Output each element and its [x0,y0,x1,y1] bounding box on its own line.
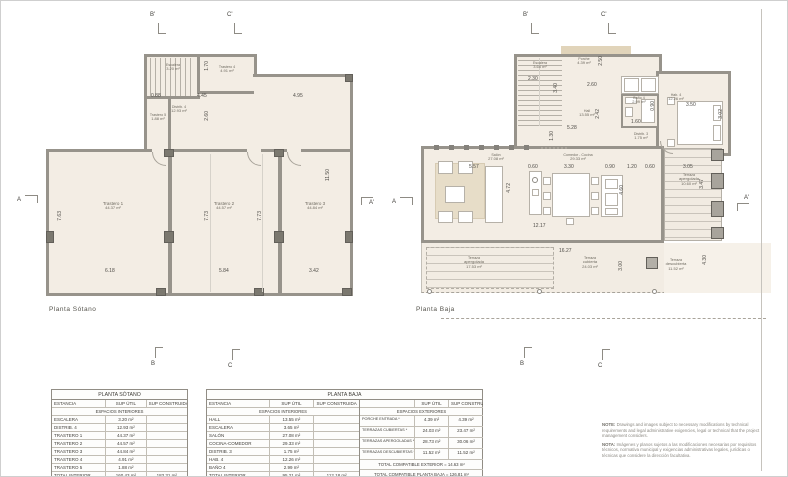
counter-sink [605,208,618,215]
dim-isl: 0.60 [528,165,538,170]
dim-170: 1.70 [205,61,210,71]
column-base [427,289,432,294]
cell: HAB. 4 [207,456,270,463]
table-section-row: ESPACIOS INTERIORES [52,408,187,416]
table-row: TRASTERO 2 44.57 m² [52,440,187,448]
cell: 12.93 m² [106,424,146,431]
chair [543,177,551,185]
marker-c-prime-sotano: C' [227,12,232,18]
sotano-main-block [46,149,353,296]
cell: 24.03 m² [415,427,449,437]
cell [314,456,359,463]
cell: 28.73 m² [415,438,449,448]
cell: 1.88 m² [106,464,146,471]
window-mullion [449,145,454,150]
dim-main-w: 12.17 [533,224,546,229]
total-exterior: TOTAL COMPATIBLE EXTERIOR = 14.63 m² [360,460,483,470]
marker-c-prime-baja: C' [601,12,606,18]
marker-b-prime-baja: B' [523,12,528,18]
room-label-escalera-baja: Escalera 3.65 m² [520,61,560,70]
toilet [625,107,633,117]
pillar [342,288,352,296]
dim-strip-h: 3.47 [700,179,705,189]
table-row: TRASTERO 5 1.88 m² [52,464,187,472]
cell: 2.99 m² [270,464,315,471]
chair [543,192,551,200]
cell [147,464,187,471]
wall [197,54,200,94]
chair [591,177,599,185]
pillar [345,231,353,243]
marker-tick [37,195,38,203]
marker-tick [158,33,166,34]
dim-esc-h: 3.40 [554,83,559,93]
room-area: 11.52 m² [649,267,703,272]
cell: TRASTERO 4 [52,456,106,463]
pillow [713,125,721,141]
room-label-trastero2: Trastero 2 44.57 m² [202,201,246,211]
dryer [641,78,656,92]
dim-342: 3.42 [309,269,319,274]
cell [314,464,359,471]
cell: TOTAL INTERIOR [52,472,106,477]
room-area: 29.33 m² [549,157,607,162]
cell: 30.06 m² [449,438,483,448]
dim-763: 7.63 [58,211,63,221]
sofa [485,166,503,223]
floorplan-sheet: Escalera 3.20 m² Trastero 4 4.91 m² Tras… [0,0,788,477]
site-dashed-line [441,318,766,319]
table-header-row: ESTANCIA SUP ÚTIL SUP CONSTRUIDA [207,400,359,408]
oven [605,193,618,206]
dim-hall-h: 2.42 [596,109,601,119]
dim-gap-b: 0.60 [645,165,655,170]
dim-088: 0.88 [151,94,161,99]
island-sink [532,177,538,183]
table-row: COCINA-COMEDOR 29.33 m² [207,440,359,448]
cell: 95.21 m² [270,472,315,477]
dim-bano-w: 1.60 [631,120,641,125]
cell: 11.52 m² [449,449,483,459]
marker-tick [25,195,37,196]
table-row: SALÓN 27.08 m² [207,432,359,440]
cell: HALL [207,416,270,423]
marker-tick [524,347,525,358]
cell: BAÑO 4 [207,464,270,471]
cell [314,448,359,455]
interior-group: ESTANCIA SUP ÚTIL SUP CONSTRUIDA ESPACIO… [207,400,360,477]
marker-tick [234,33,242,34]
notes-block: NOTE: Drawings and images subject to nec… [602,422,760,461]
table-section-row: ESPACIOS INTERIORES [207,408,359,416]
dim-584: 5.84 [219,269,229,274]
cell: DISTRIB. 4 [52,424,106,431]
marker-tick [361,197,373,198]
dim-1150: 11.50 [326,169,331,181]
marker-tick [608,33,616,34]
dim-salon-w: 5.57 [469,165,479,170]
cell [147,456,187,463]
room-area: 17.53 m² [449,265,499,270]
table-row: HAB. 4 12.26 m² [207,456,359,464]
table-title: PLANTA SÓTANO [52,390,187,400]
room-area: 1.75 m² [623,136,659,141]
dim-hab-w: 3.50 [686,103,696,108]
marker-tick [524,347,532,348]
sliding-door [541,147,567,149]
cell: 3.20 m² [106,416,146,423]
marker-tick [608,23,609,33]
room-area: 3.65 m² [520,65,560,70]
table-row: TRASTERO 3 44.84 m² [52,448,187,456]
cell: 44.37 m² [106,432,146,439]
coffee-table [445,186,465,203]
cell [147,424,187,431]
marker-b-prime-sotano: B' [150,12,155,18]
dim-table: 3.30 [564,165,574,170]
table-row: DISTRIB. 4 12.93 m² [52,424,187,432]
dim-260: 2.60 [205,111,210,121]
cell: 13.55 m² [270,416,315,423]
col-header: SUP ÚTIL [415,400,449,407]
table-title: PLANTA BAJA [207,390,482,400]
table-row: DISTRIB. 3 1.75 m² [207,448,359,456]
table-planta-sotano: PLANTA SÓTANO ESTANCIA SUP ÚTIL SUP CONS… [51,389,188,477]
cell: TOTAL INTERIOR [207,472,270,477]
col-header: SUP CONSTRUIDA [147,400,187,407]
cell: PORCHE ENTRADA * [360,416,415,426]
room-area: 44.84 m² [293,206,337,211]
table-row: TERRAZAS APERGOLADAS ** 28.73 m² 30.06 m… [360,438,483,449]
table-header-row: SUP ÚTIL SUP CONSTRUIDA [360,400,483,408]
table-row: TERRAZAS CUBIERTAS * 24.03 m² 23.47 m² [360,427,483,438]
window-mullion [524,145,529,150]
cell: COCINA-COMEDOR [207,440,270,447]
note-en-text: Drawings and images subject to necessary… [602,422,759,438]
cell [314,432,359,439]
cell: TERRAZAS APERGOLADAS ** [360,438,415,448]
sotano-upper-right-block [253,74,353,152]
cell: DISTRIB. 3 [207,448,270,455]
island-hob [532,189,539,196]
cell [314,424,359,431]
room-label-hab4: Hab. 4 12.26 m² [659,93,693,102]
total-planta-baja: TOTAL COMPATIBLE PLANTA BAJA = 126.81 m² [360,470,483,477]
cell: 4.39 m² [415,416,449,426]
table-row: TRASTERO 1 44.37 m² [52,432,187,440]
room-area: 3.20 m² [153,67,193,72]
dim-hall-w: 5.28 [567,126,577,131]
room-label-escalera-sotano: Escalera 3.20 m² [153,63,193,72]
dim-terr-w: 16.27 [559,249,572,254]
cell [147,440,187,447]
cell: 3.65 m² [270,424,315,431]
marker-a-prime-sotano: A' [369,200,374,206]
dining-table [552,173,590,217]
marker-tick [234,23,235,33]
cell: 29.33 m² [270,440,315,447]
cell: 4.39 m² [449,416,483,426]
marker-tick [412,197,413,205]
table-row: ESCALERA 3.65 m² [207,424,359,432]
pillar [345,74,353,82]
dim-773b: 7.73 [258,211,263,221]
col-header: ESTANCIA [52,400,106,407]
hob [605,179,618,189]
dim-hall-s: 1.30 [550,131,555,141]
dim-desc-h: 4.30 [703,255,708,265]
marker-tick [232,349,240,350]
dim-terr-h: 3.00 [619,261,624,271]
col-header: SUP ÚTIL [106,400,146,407]
col-header: SUP ÚTIL [270,400,315,407]
cell [314,416,359,423]
dim-cocina-h: 4.60 [620,185,625,195]
marker-tick [602,349,603,360]
col-header: SUP CONSTRUIDA [314,400,359,407]
table-row: TRASTERO 4 4.91 m² [52,456,187,464]
room-label-salon: Salón 27.08 m² [479,153,513,162]
marker-b-baja: B [520,361,524,367]
marker-c-baja: C [598,363,602,369]
cell: 4.91 m² [106,456,146,463]
marker-tick [361,197,362,205]
window-mullion [464,145,469,150]
marker-tick [400,197,412,198]
chair [543,207,551,215]
wall [168,152,172,293]
room-label-trastero5: Trastero 5 1.88 m² [148,113,168,122]
armchair [438,211,453,223]
room-label-terraza-descubierta: Terraza descubierta 11.52 m² [649,258,703,272]
room-area: 4.91 m² [204,69,250,74]
chair [566,218,574,225]
table-row: ESCALERA 3.20 m² [52,416,187,424]
room-area: 12.93 m² [159,109,199,114]
dim-strip-w: 3.05 [683,165,693,170]
pillar [156,288,166,296]
sheet-frame-line [761,9,762,471]
cell: ESCALERA [207,424,270,431]
room-label-cocina: Comedor - Cocina 29.33 m² [549,153,607,162]
note-es-text: Imágenes y planos sujetos a las modifica… [602,442,756,458]
cell [147,416,187,423]
washer [624,78,639,92]
cell: ESCALERA [52,416,106,423]
table-header-row: ESTANCIA SUP ÚTIL SUP CONSTRUIDA [52,400,187,408]
cell: 44.84 m² [106,448,146,455]
guide-line [262,154,263,292]
marker-tick [531,33,539,34]
cell [147,432,187,439]
table-total-row: TOTAL INTERIOR 95.21 m² 112.18 m² [207,472,359,477]
note-es: NOTA: Imágenes y planos sujetos a las mo… [602,442,760,459]
marker-tick [155,347,163,348]
pillar [274,231,284,243]
room-label-distrib4: Distrib. 4 12.93 m² [159,105,199,114]
marker-tick [158,23,159,33]
column-base [652,289,657,294]
col-header: SUP CONSTRUIDA [449,400,483,407]
wall [200,91,254,94]
chair [591,207,599,215]
dim-495: 4.95 [293,94,303,99]
armchair [438,161,453,174]
note-es-label: NOTA: [602,442,615,447]
cell: 27.08 m² [270,432,315,439]
cell: TRASTERO 3 [52,448,106,455]
window-mullion [434,145,439,150]
note-en: NOTE: Drawings and images subject to nec… [602,422,760,439]
col-header: ESTANCIA [207,400,270,407]
guide-line [210,154,211,292]
pillar [711,149,724,161]
marker-tick [155,347,156,358]
pillar [711,227,724,239]
baja-caption: Planta Baja [416,306,455,313]
dim-gap-a: 1.20 [627,165,637,170]
marker-tick [602,349,610,350]
room-area: 4.39 m² [567,61,601,66]
cell: TERRAZAS CUBIERTAS * [360,427,415,437]
room-label-porche: Porche 4.39 m² [567,57,601,66]
room-label-distrib3: Distrib. 3 1.75 m² [623,132,659,141]
wall [278,152,282,293]
cell: 23.47 m² [449,427,483,437]
col-header [360,400,415,407]
dim-773a: 7.73 [205,211,210,221]
dim-445: 4.45 [197,94,207,99]
cell: 160.43 m² [106,472,146,477]
table-section-row: ESPACIOS EXTERIORES [360,408,483,416]
room-label-trastero4: Trastero 4 4.91 m² [204,65,250,74]
marker-a-sotano: A [17,197,21,203]
exterior-group: SUP ÚTIL SUP CONSTRUIDA ESPACIOS EXTERIO… [360,400,483,477]
dim-618: 6.18 [105,269,115,274]
dim-porche-h: 2.50 [599,56,604,66]
dim-esc-w: 2.30 [528,77,538,82]
pillar [711,201,724,217]
dim-counter: 0.90 [605,165,615,170]
cell [314,440,359,447]
room-area: 44.37 m² [91,206,135,211]
chair [591,192,599,200]
column-base [537,289,542,294]
cell: 1.75 m² [270,448,315,455]
table-row: BAÑO 4 2.99 m² [207,464,359,472]
window-mullion [494,145,499,150]
pillar [711,173,724,189]
cell: TRASTERO 5 [52,464,106,471]
marker-tick [737,203,749,204]
table-row: HALL 13.55 m² [207,416,359,424]
room-label-terraza-apergolada: Terraza apergolada 17.53 m² [449,256,499,270]
cell: TERRAZAS DESCUBIERTAS ** [360,449,415,459]
marker-tick [531,23,532,33]
dim-salon-h: 4.72 [507,183,512,193]
cell: 44.57 m² [106,440,146,447]
cell: 112.18 m² [314,472,359,477]
cell: 183.31 m² [147,472,187,477]
sotano-caption: Planta Sótano [49,306,96,313]
dim-hab-h: 3.02 [719,109,724,119]
cell: 12.26 m² [270,456,315,463]
marker-a-prime-baja: A' [744,195,749,201]
pillar [164,149,174,157]
room-area: 1.88 m² [148,117,168,122]
table-row: PORCHE ENTRADA * 4.39 m² 4.39 m² [360,416,483,427]
cell [147,448,187,455]
dim-porche-w: 2.60 [587,83,597,88]
table-total-row: TOTAL INTERIOR 160.43 m² 183.31 m² [52,472,187,477]
marker-tick [737,203,738,211]
room-area: 27.08 m² [479,157,513,162]
marker-a-baja: A [392,199,396,205]
table-planta-baja: PLANTA BAJA ESTANCIA SUP ÚTIL SUP CONSTR… [206,389,483,477]
cell: SALÓN [207,432,270,439]
pillar [274,149,284,157]
table-row: TERRAZAS DESCUBIERTAS ** 11.52 m² 11.52 … [360,449,483,460]
marker-b-sotano: B [151,361,155,367]
cell: TRASTERO 1 [52,432,106,439]
table-groups: ESTANCIA SUP ÚTIL SUP CONSTRUIDA ESPACIO… [207,400,482,477]
marker-tick [232,349,233,360]
pillar [46,231,54,243]
window-mullion [479,145,484,150]
room-area: 24.03 m² [567,265,613,270]
room-label-trastero1: Trastero 1 44.37 m² [91,201,135,211]
dim-bano-h: 0.90 [651,101,656,111]
room-label-trastero3: Trastero 3 44.84 m² [293,201,337,211]
pillar [164,231,174,243]
cell: TRASTERO 2 [52,440,106,447]
armchair [458,211,473,223]
note-en-label: NOTE: [602,422,615,427]
cell: 11.52 m² [415,449,449,459]
room-label-terraza-cubierta: Terraza cubierta 24.03 m² [567,256,613,270]
marker-c-sotano: C [228,363,232,369]
window-mullion [509,145,514,150]
